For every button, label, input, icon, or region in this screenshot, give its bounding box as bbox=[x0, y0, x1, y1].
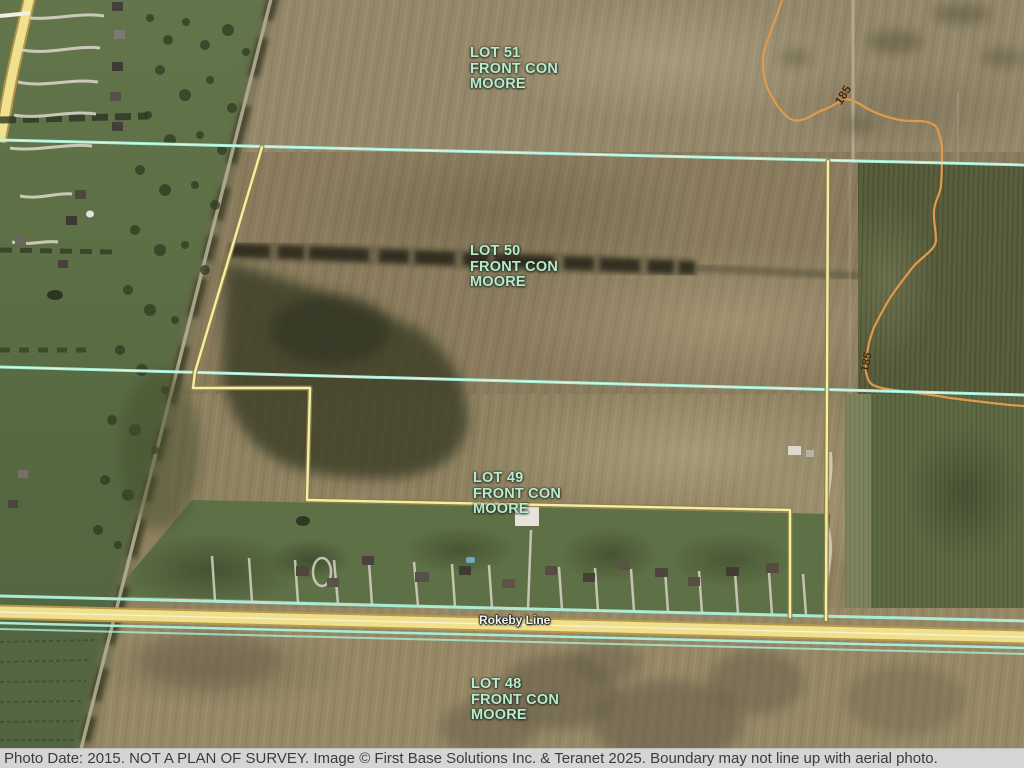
map-viewport[interactable]: LOT 51FRONT CONMOORE LOT 50FRONT CONMOOR… bbox=[0, 0, 1024, 748]
road-label-rokeby-line: Rokeby Line bbox=[479, 613, 550, 627]
lot-label-50: LOT 50FRONT CONMOORE bbox=[470, 244, 558, 291]
photo-attribution-bar: Photo Date: 2015. NOT A PLAN OF SURVEY. … bbox=[0, 748, 1024, 768]
map-overlay-graphics bbox=[0, 0, 1024, 748]
houses-west bbox=[8, 2, 125, 508]
woods-patch bbox=[120, 262, 468, 530]
houses-north bbox=[296, 506, 779, 588]
map-screenshot: LOT 51FRONT CONMOORE LOT 50FRONT CONMOOR… bbox=[0, 0, 1024, 768]
lot-label-49: LOT 49FRONT CONMOORE bbox=[473, 471, 561, 518]
sheds-east bbox=[788, 446, 814, 457]
lot-label-51: LOT 51FRONT CONMOORE bbox=[470, 46, 558, 93]
hedgerows-west bbox=[0, 116, 148, 350]
lot-label-48: LOT 48FRONT CONMOORE bbox=[471, 677, 559, 724]
